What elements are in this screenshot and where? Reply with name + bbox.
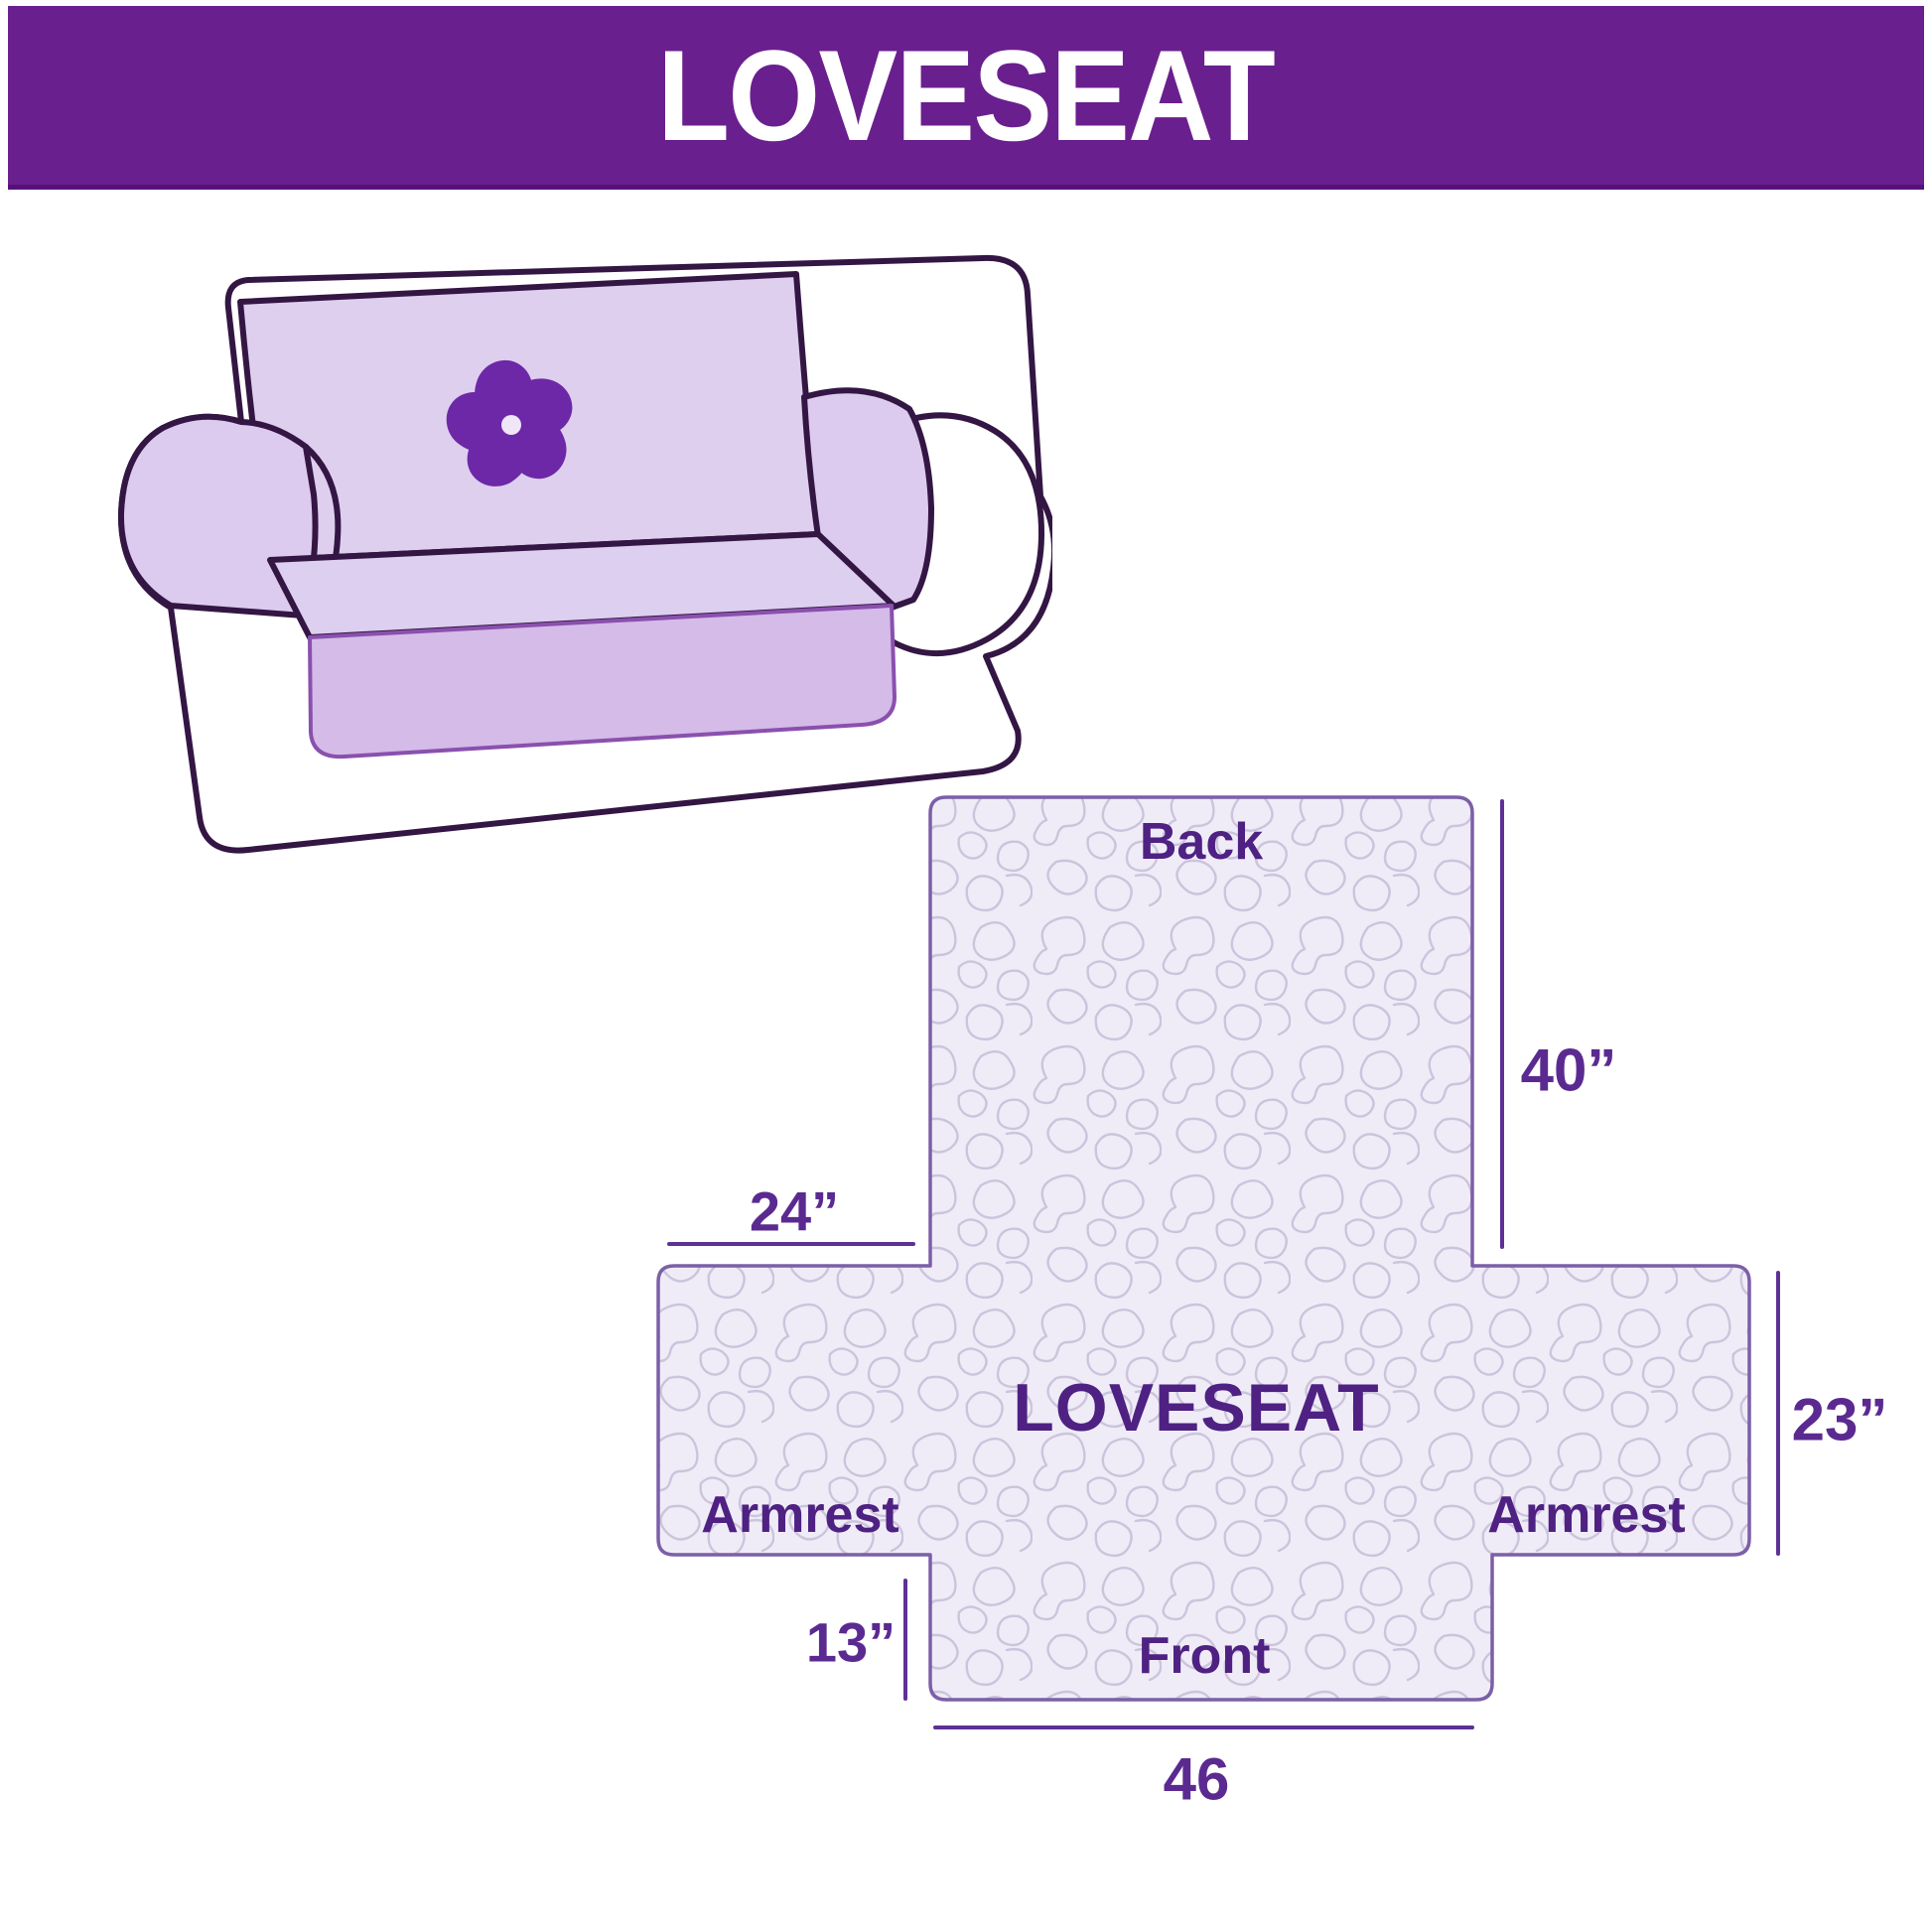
dim-side-height-value: 23”	[1792, 1386, 1888, 1454]
header-banner: LOVESEAT	[8, 6, 1924, 190]
sofa-drawing	[99, 248, 1052, 864]
sofa-illustration	[99, 248, 1052, 864]
back-panel-label: Back	[1140, 812, 1263, 872]
page-title: LOVESEAT	[657, 21, 1274, 170]
armrest-right-label: Armrest	[1487, 1485, 1685, 1545]
dim-front-drop-line	[903, 1579, 907, 1701]
dim-front-drop-value: 13”	[806, 1610, 896, 1675]
armrest-left-label: Armrest	[701, 1485, 898, 1545]
page: LOVESEAT	[0, 0, 1932, 1932]
dim-back-height-line	[1500, 799, 1504, 1249]
cover-quilt-pattern	[658, 797, 1749, 1700]
front-panel-label: Front	[1139, 1626, 1271, 1686]
dim-back-width-value: 24”	[750, 1179, 839, 1244]
dim-back-height-value: 40”	[1521, 1036, 1617, 1105]
dim-front-width-value: 46	[1164, 1745, 1230, 1814]
dim-side-height-line	[1776, 1271, 1780, 1556]
product-label: LOVESEAT	[1013, 1369, 1379, 1447]
dim-front-width-line	[933, 1725, 1474, 1729]
